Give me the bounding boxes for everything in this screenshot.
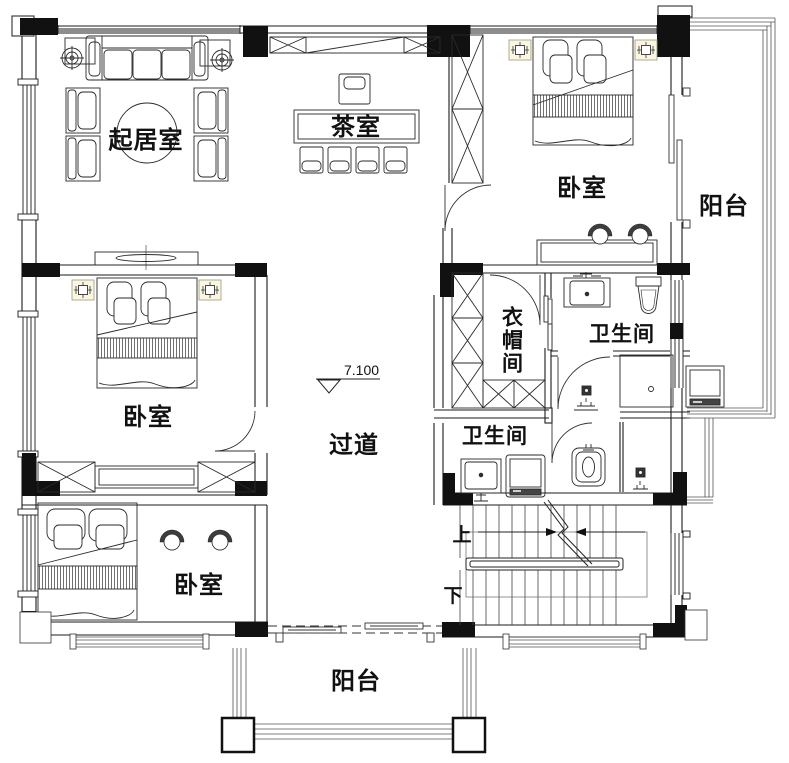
nightstand-lamp-icon (199, 280, 221, 300)
water-heater (686, 366, 724, 407)
label-bathroom-upper: 卫生间 (589, 322, 655, 346)
label-stairs-up: 上 (452, 524, 471, 546)
elevation-value: 7.100 (344, 362, 379, 378)
label-bedroom-bottom-left: 卧室 (174, 571, 224, 599)
window-west-living (18, 79, 38, 220)
window-west-bedroom-middle (18, 311, 38, 457)
label-bathroom-lower: 卫生间 (462, 424, 528, 448)
label-bedroom-top-right: 卧室 (557, 174, 607, 202)
stair-handrail (466, 558, 623, 570)
label-tea-room: 茶室 (331, 113, 381, 141)
label-bedroom-middle-left: 卧室 (123, 403, 173, 431)
window-west-bedroom-bottom (18, 509, 38, 597)
sliding-panel (544, 296, 548, 322)
label-hallway: 过道 (329, 431, 379, 459)
balcony-column (222, 718, 254, 752)
label-balcony-right: 阳台 (699, 192, 749, 220)
balcony-column (453, 718, 485, 752)
window-top-living (58, 25, 240, 35)
label-balcony-bottom: 阳台 (331, 667, 381, 695)
nightstand-lamp-icon (72, 280, 94, 300)
window-top-bedroom (470, 25, 657, 35)
ac-platform (20, 612, 51, 643)
nightstand-lamp-icon (635, 40, 657, 60)
label-living-room: 起居室 (108, 126, 184, 154)
floor-plan: 7.100 起居室 茶室 卧室 阳台 衣帽间 卫生间 卧室 过道 卫生间 卧室 … (0, 0, 789, 763)
label-cloakroom: 衣帽间 (500, 305, 524, 375)
sliding-panel (548, 324, 552, 350)
nightstand-lamp-icon (509, 40, 531, 60)
exterior-ledge (685, 610, 707, 640)
label-stairs-down: 下 (443, 586, 462, 607)
